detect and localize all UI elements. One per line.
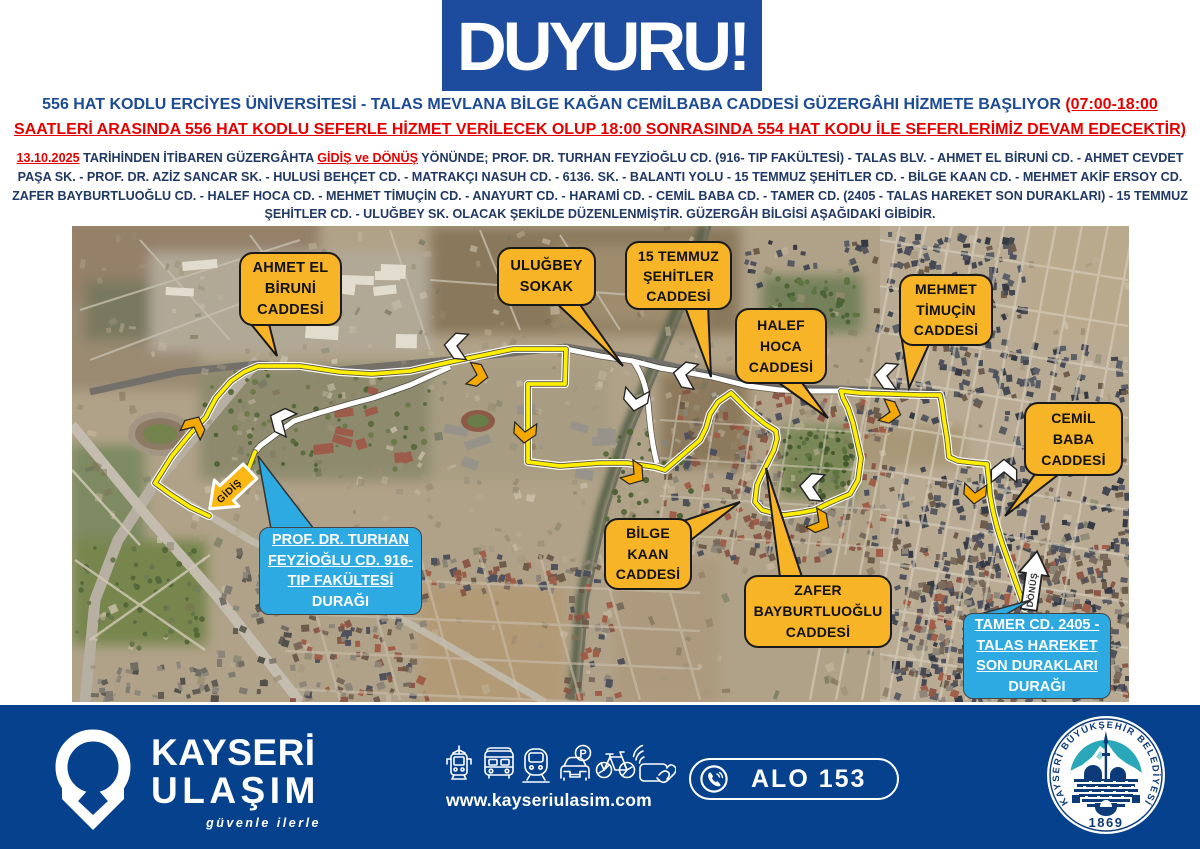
svg-text:1869: 1869 [1089,815,1124,830]
